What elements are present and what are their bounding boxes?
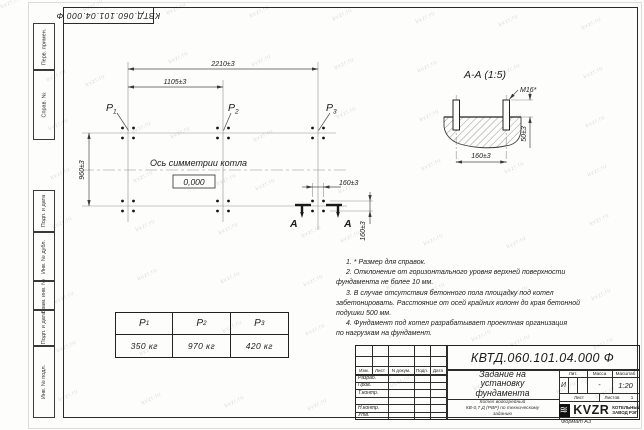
load-table: P1 P2 P3 350 кг 970 кг 420 кг (115, 312, 289, 358)
sheets-label: Листов (599, 393, 625, 401)
note-line: 2. Отклонение от горизонтального уровня … (336, 268, 642, 278)
scale-header: Масштаб (612, 369, 639, 377)
sheets-value: 1 (625, 393, 639, 401)
lit-value: И (559, 377, 568, 393)
col-header-data: Дата (430, 366, 446, 374)
mass-header: Масса (587, 369, 612, 377)
load-table-header-p2: P2 (173, 313, 230, 335)
col-header-dokum: N докум. (388, 366, 414, 374)
margin-cell-inv-podl: Инв. № подл. (33, 346, 55, 418)
mass-value: - (587, 377, 612, 393)
note-line: фундамента не более 10 мм. (336, 278, 642, 288)
note-line: по нагрузкам на фундамент. (336, 329, 642, 339)
wave-emblem-icon: ≋ (559, 404, 570, 417)
load-table-value-p1: 350 кг (116, 335, 173, 357)
product-name: Котел водогрейный КВ-0,7 Д (РВР) по техн… (446, 399, 559, 419)
lit-header: Лит. (559, 369, 587, 377)
drawing-sheet: kvzr.rukvzr.rukvzr.rukvzr.rukvzr.rukvzr.… (0, 0, 644, 430)
top-doc-number-stamp: КВТД.060.101.04.000 Ф (63, 7, 154, 24)
drawing-title: Задание на установку фундамента (446, 369, 559, 399)
margin-cell-podp-data-1: Подп. и дата (33, 190, 55, 232)
col-header-list: Лист (372, 366, 388, 374)
load-table-value-p3: 420 кг (231, 335, 288, 357)
title-block: КВТД.060.101.04.000 Ф Задание на установ… (355, 345, 640, 420)
format-label: Формат А3 (536, 419, 616, 425)
logo-text: KVZR (573, 403, 609, 417)
top-doc-number-text: КВТД.060.101.04.000 Ф (56, 11, 160, 21)
col-header-izm: Изм. (356, 366, 372, 374)
load-table-header-p1: P1 (116, 313, 173, 335)
note-line: 3. В случае отсутствия бетонного пола пл… (336, 289, 642, 299)
sheet-label: Лист (559, 393, 599, 401)
margin-cell-podp-data-2: Подп. и дата (33, 310, 55, 346)
note-line: подушки 500 мм. (336, 309, 642, 319)
notes-block: 1. * Размер для справок. 2. Отклонение о… (336, 258, 642, 340)
row-label-utv: Утв. (356, 412, 390, 420)
scale-value: 1:20 (612, 377, 639, 393)
company-logo: ≋ KVZR КОТЕЛЬНЫЙ ЗАВОД РЭП (559, 401, 639, 419)
note-line: 1. * Размер для справок. (336, 258, 642, 268)
note-line: забетонировать. Расстояние от осей крайн… (336, 299, 642, 309)
row-label-razrab: Разраб. (356, 374, 390, 382)
margin-cell-sprav-n: Справ. № (33, 70, 55, 140)
row-label-tkontr: Т.контр. (356, 389, 390, 397)
note-line: 4. Фундамент под котел разрабатывает про… (336, 319, 642, 329)
margin-cell-inv-dubl: Инв. № дубл. (33, 232, 55, 281)
load-table-value-p2: 970 кг (173, 335, 230, 357)
doc-number: КВТД.060.101.04.000 Ф (446, 346, 639, 369)
row-label-nkontr: Н.контр. (356, 404, 390, 412)
margin-cell-perv-primen: Перв. примен. (33, 23, 55, 70)
col-header-podp: Подп. (414, 366, 430, 374)
load-table-header-p3: P3 (231, 313, 288, 335)
company-name: КОТЕЛЬНЫЙ ЗАВОД РЭП (612, 405, 639, 415)
margin-cell-vzam-inv: Взам. инв. № (33, 281, 55, 310)
row-label-prov: Пров. (356, 382, 390, 390)
